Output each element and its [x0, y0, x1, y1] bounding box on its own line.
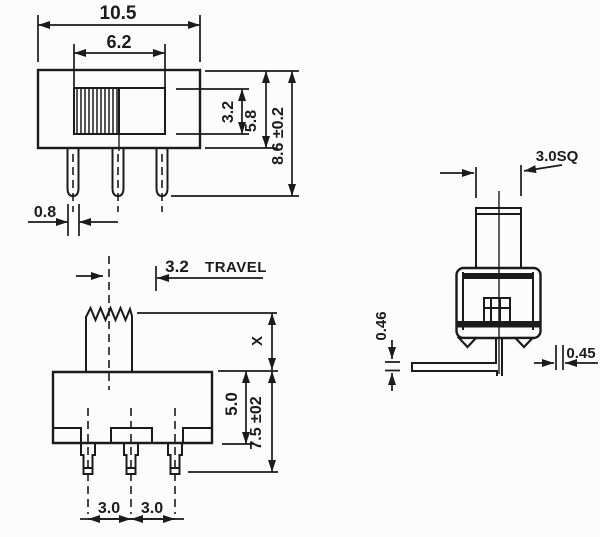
- actuator-square-leader: [524, 165, 562, 171]
- dim-travel-word-label: TRAVEL: [205, 259, 267, 276]
- end-body-lower-band: [457, 321, 540, 328]
- dim-overall-width-label: 10.5: [100, 3, 137, 24]
- end-center-contact-block: [484, 298, 510, 321]
- lead-width-extension-ticks: [556, 345, 563, 370]
- mounted-view: 3.2 TRAVEL X 5.0 7.5 ±02 3.0 3.0: [53, 256, 278, 519]
- dim-pitch-right-label: 3.0: [141, 500, 163, 517]
- dim-slot-height-label: 3.2: [220, 101, 237, 123]
- slide-switch-dimension-drawing: 10.5 6.2 3.2 5.8 8.6 ±0.2 0.8 3.2 TRAVEL…: [0, 0, 600, 537]
- mounted-terminal-centerlines: [88, 408, 175, 514]
- dim-front-overall-height-label: 8.6 ±0.2: [270, 107, 287, 165]
- dim-travel-value-label: 3.2: [165, 257, 189, 276]
- lead-thickness-extension-ticks: [385, 362, 400, 371]
- front-view: 10.5 6.2 3.2 5.8 8.6 ±0.2 0.8: [28, 3, 299, 236]
- end-view: 3.0SQ 0.46 0.45: [373, 148, 598, 391]
- dim-lead-thickness-label: 0.46: [373, 311, 390, 340]
- dim-mounted-overall-height-label: 7.5 ±02: [248, 396, 265, 449]
- dim-actuator-height-label: X: [249, 336, 266, 346]
- dim-mounted-body-height-label: 5.0: [222, 392, 241, 416]
- mounted-body-outline: [53, 372, 212, 443]
- dim-actuator-square-label: 3.0SQ: [536, 148, 579, 165]
- mounted-base-seams: [53, 428, 212, 443]
- front-terminal-centerlines: [73, 154, 162, 212]
- dim-body-height-label: 5.8: [243, 110, 260, 132]
- front-actuator-serrations: [77, 88, 117, 134]
- dim-terminal-width-label: 0.8: [34, 204, 56, 221]
- end-body-inner-sides: [463, 273, 533, 329]
- dim-slot-width-label: 6.2: [106, 32, 131, 52]
- dim-lead-width-label: 0.45: [566, 345, 595, 362]
- end-bent-terminal: [412, 338, 502, 375]
- dim-pitch-left-label: 3.0: [98, 500, 120, 517]
- end-body-upper-band: [462, 273, 534, 279]
